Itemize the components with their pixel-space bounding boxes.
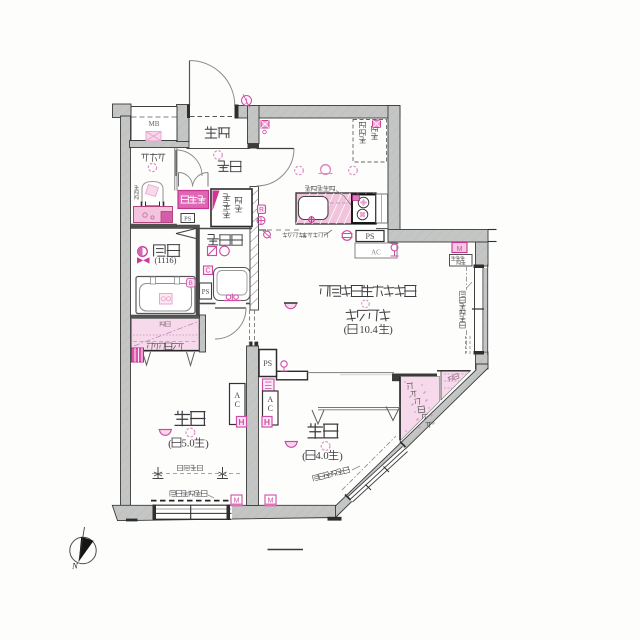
- svg-text:MB: MB: [149, 120, 160, 128]
- svg-text:): ): [205, 438, 209, 450]
- svg-text:AC: AC: [371, 249, 381, 257]
- svg-text:): ): [339, 451, 343, 463]
- svg-text:4.0: 4.0: [315, 451, 328, 462]
- svg-text:H: H: [264, 417, 270, 427]
- svg-text:(1116): (1116): [154, 255, 176, 265]
- svg-text:PS: PS: [366, 232, 375, 241]
- svg-text:PS: PS: [184, 215, 192, 222]
- svg-text:A: A: [267, 395, 273, 404]
- svg-text:(: (: [302, 451, 306, 463]
- svg-text:PS: PS: [202, 288, 210, 296]
- svg-text:5.0: 5.0: [181, 439, 194, 450]
- svg-text:A: A: [234, 391, 240, 400]
- svg-text:B: B: [189, 280, 193, 287]
- svg-text:C: C: [205, 268, 210, 275]
- svg-text:H: H: [238, 417, 244, 427]
- svg-text:R: R: [259, 207, 264, 214]
- svg-text:(: (: [344, 324, 348, 336]
- svg-text:C: C: [268, 404, 273, 413]
- svg-text:10.4: 10.4: [359, 325, 378, 336]
- svg-text:C: C: [235, 400, 240, 409]
- svg-text:): ): [389, 324, 393, 336]
- svg-text:(: (: [168, 438, 172, 450]
- svg-text:M: M: [457, 246, 463, 253]
- svg-text:PS: PS: [263, 359, 272, 368]
